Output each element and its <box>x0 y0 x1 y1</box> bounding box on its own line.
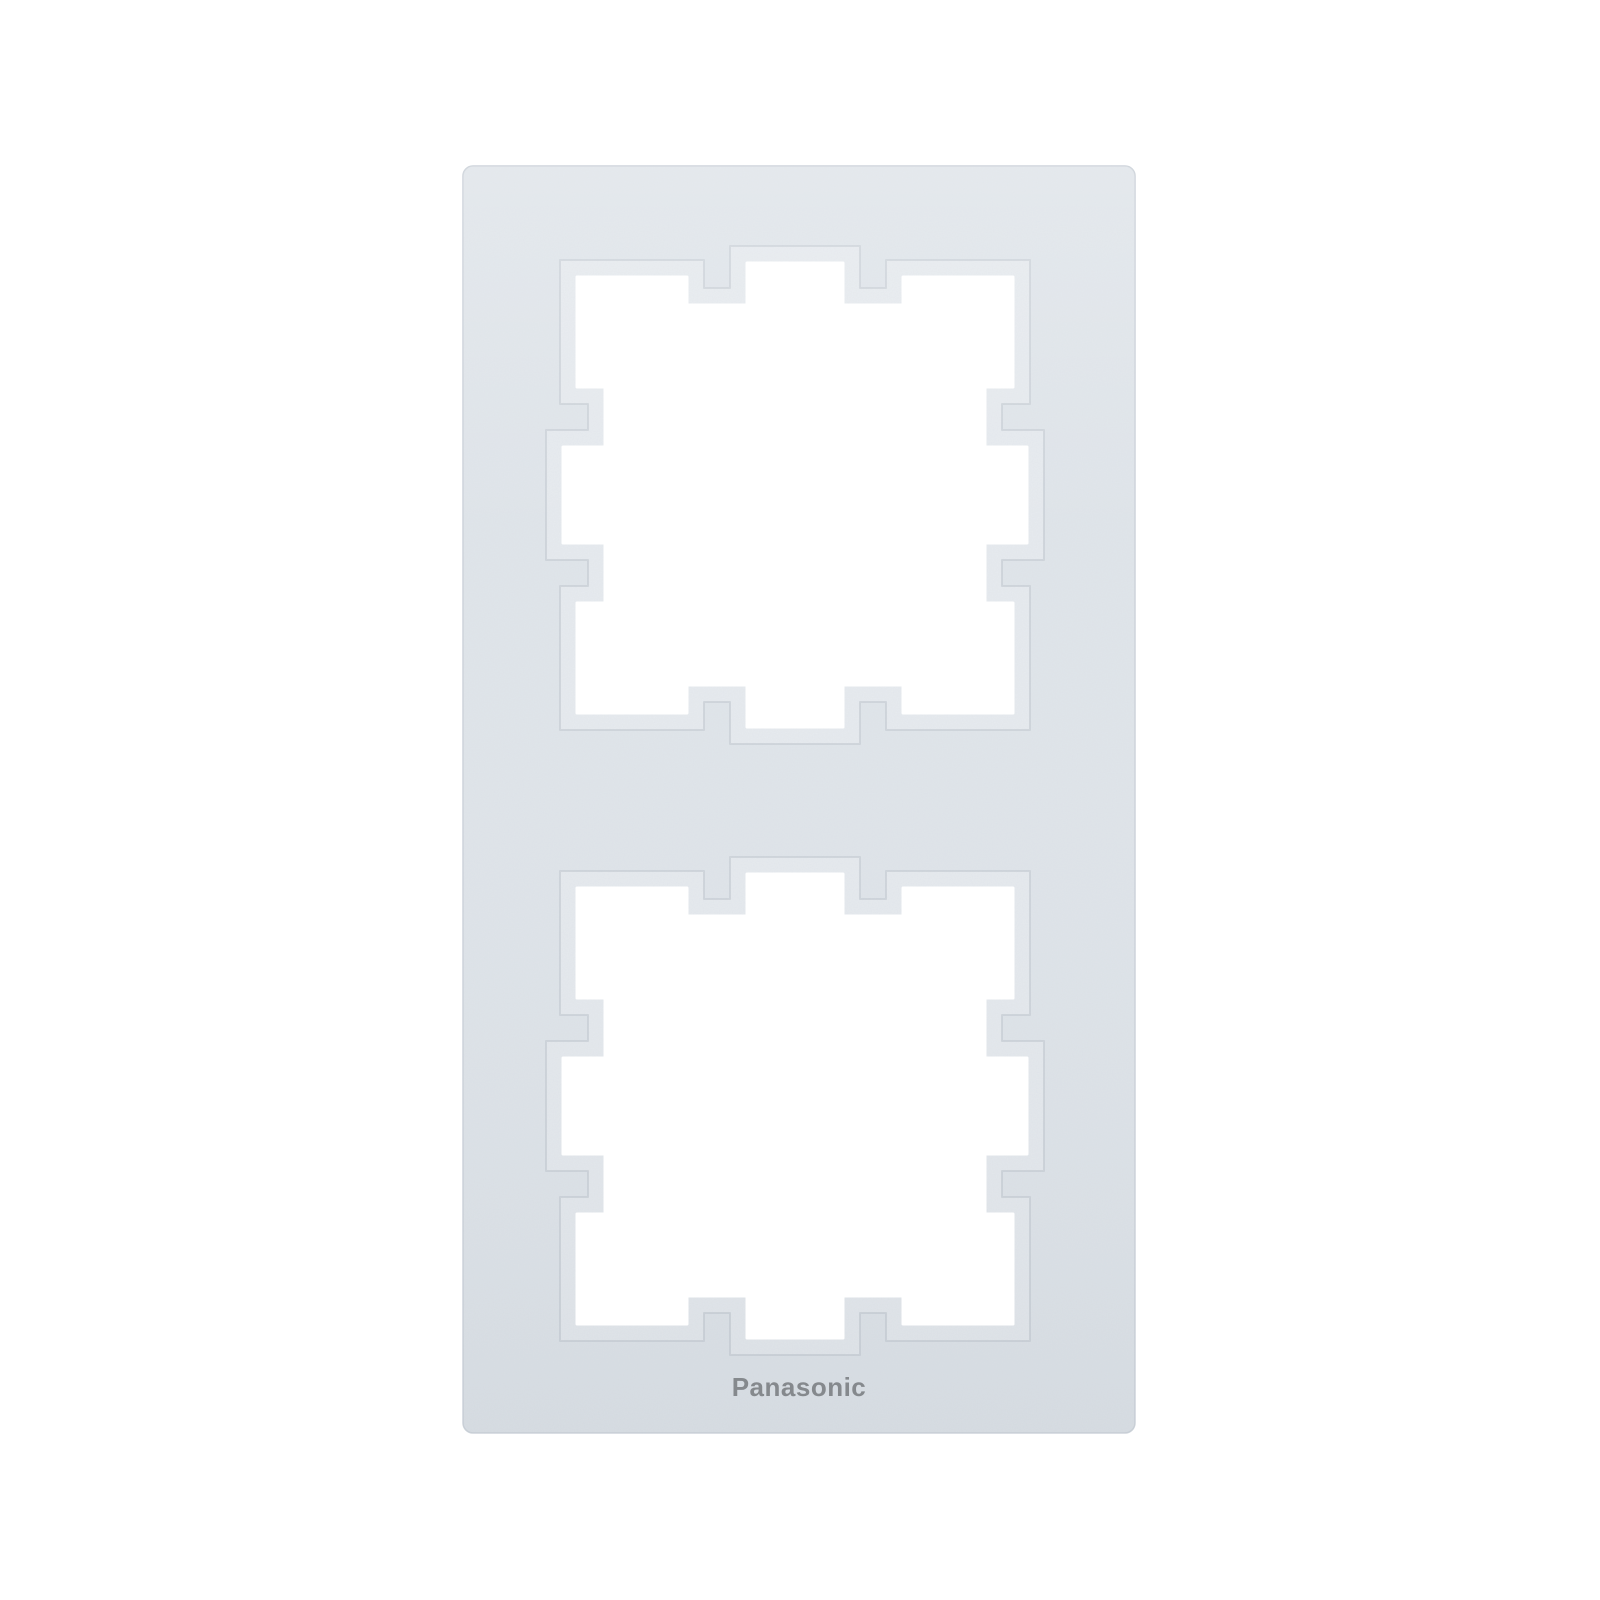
product-photo: Panasonic <box>0 0 1600 1600</box>
opening-hole-top <box>563 263 1027 727</box>
opening-hole-bottom <box>563 874 1027 1338</box>
switch-frame: Panasonic <box>462 165 1136 1434</box>
panasonic-logo: Panasonic <box>732 1372 867 1402</box>
